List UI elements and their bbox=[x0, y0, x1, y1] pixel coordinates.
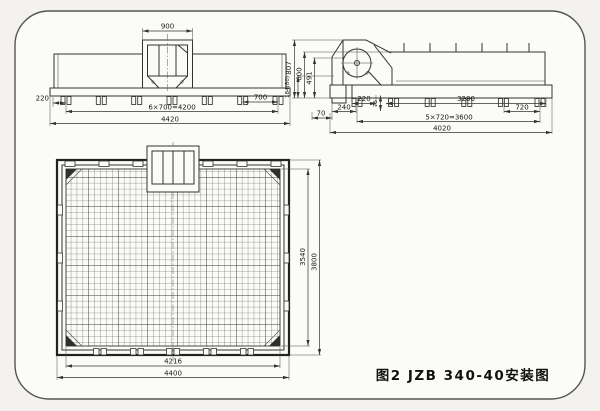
dim-front-foot-pitch-total: 6×700=4200 bbox=[148, 104, 195, 112]
dim-side-foot-spacing: 720 bbox=[515, 104, 528, 112]
dim-plan-mesh-width: 4216 bbox=[164, 358, 182, 366]
dim-side-span-3280: 3280 bbox=[457, 95, 475, 103]
dim-side-foot-pitch-total: 5×720=3600 bbox=[425, 114, 472, 122]
dim-side-offset-75: 75 bbox=[373, 100, 379, 108]
installation-drawing: 900 220 700 6×700=4200 4420 bbox=[0, 0, 600, 411]
dim-side-offset-220: 220 bbox=[357, 95, 370, 103]
dim-plan-overall-height: 3800 bbox=[311, 253, 319, 271]
dim-side-offset-70: 70 bbox=[317, 110, 326, 118]
dim-front-overall-width: 4420 bbox=[161, 116, 179, 124]
dim-side-height-base: 184(80) bbox=[285, 76, 291, 98]
figure-caption: 图2 JZB 340-40安装图 bbox=[376, 367, 550, 384]
dim-plan-overall-width: 4400 bbox=[164, 370, 182, 378]
dim-side-offset-240: 240 bbox=[337, 104, 350, 112]
dim-front-feed-box-width: 900 bbox=[161, 23, 174, 31]
plan-view: 3540 3800 4216 4400 bbox=[57, 142, 321, 380]
dim-front-left-offset: 220 bbox=[36, 95, 49, 103]
dim-side-height-wall: 600 bbox=[296, 67, 304, 80]
dim-front-foot-spacing: 700 bbox=[254, 94, 267, 102]
figure-page: 900 220 700 6×700=4200 4420 bbox=[0, 0, 600, 411]
dim-plan-mesh-height: 3540 bbox=[299, 248, 307, 266]
dim-side-height-overall: 807 bbox=[285, 61, 293, 74]
dim-side-height-discharge: 491 bbox=[306, 71, 314, 84]
plan-feed-box bbox=[147, 146, 199, 192]
front-feed-box bbox=[143, 34, 193, 93]
dim-side-overall-length: 4020 bbox=[433, 125, 451, 133]
